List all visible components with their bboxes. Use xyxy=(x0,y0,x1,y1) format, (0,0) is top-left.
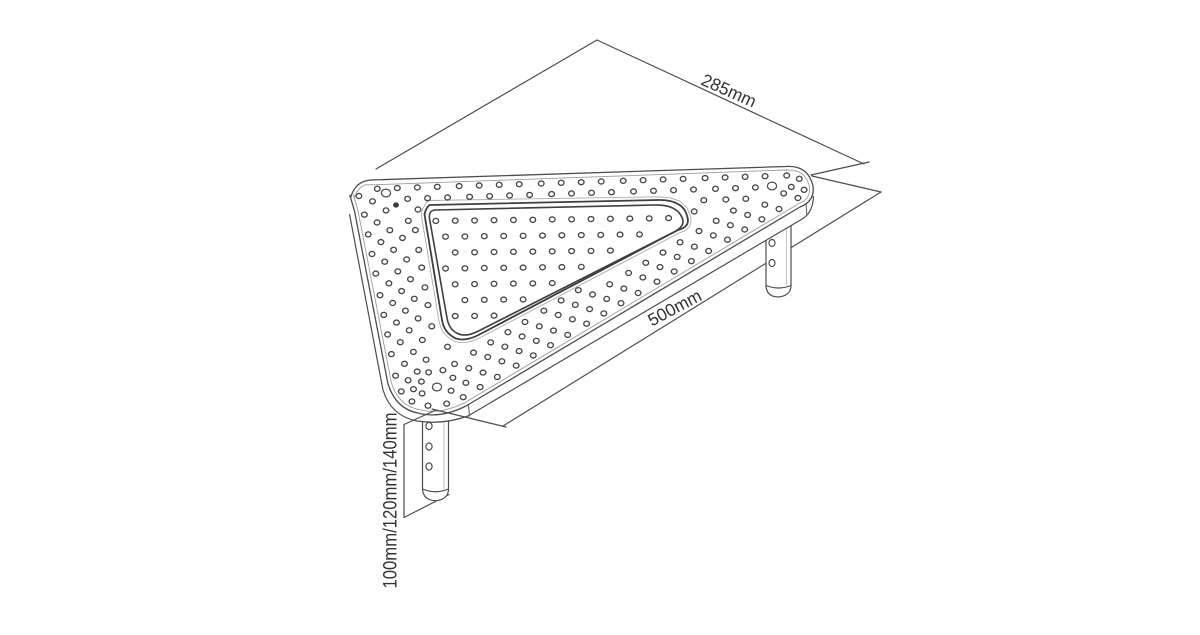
svg-text:100mm/120mm/140mm: 100mm/120mm/140mm xyxy=(381,413,402,589)
